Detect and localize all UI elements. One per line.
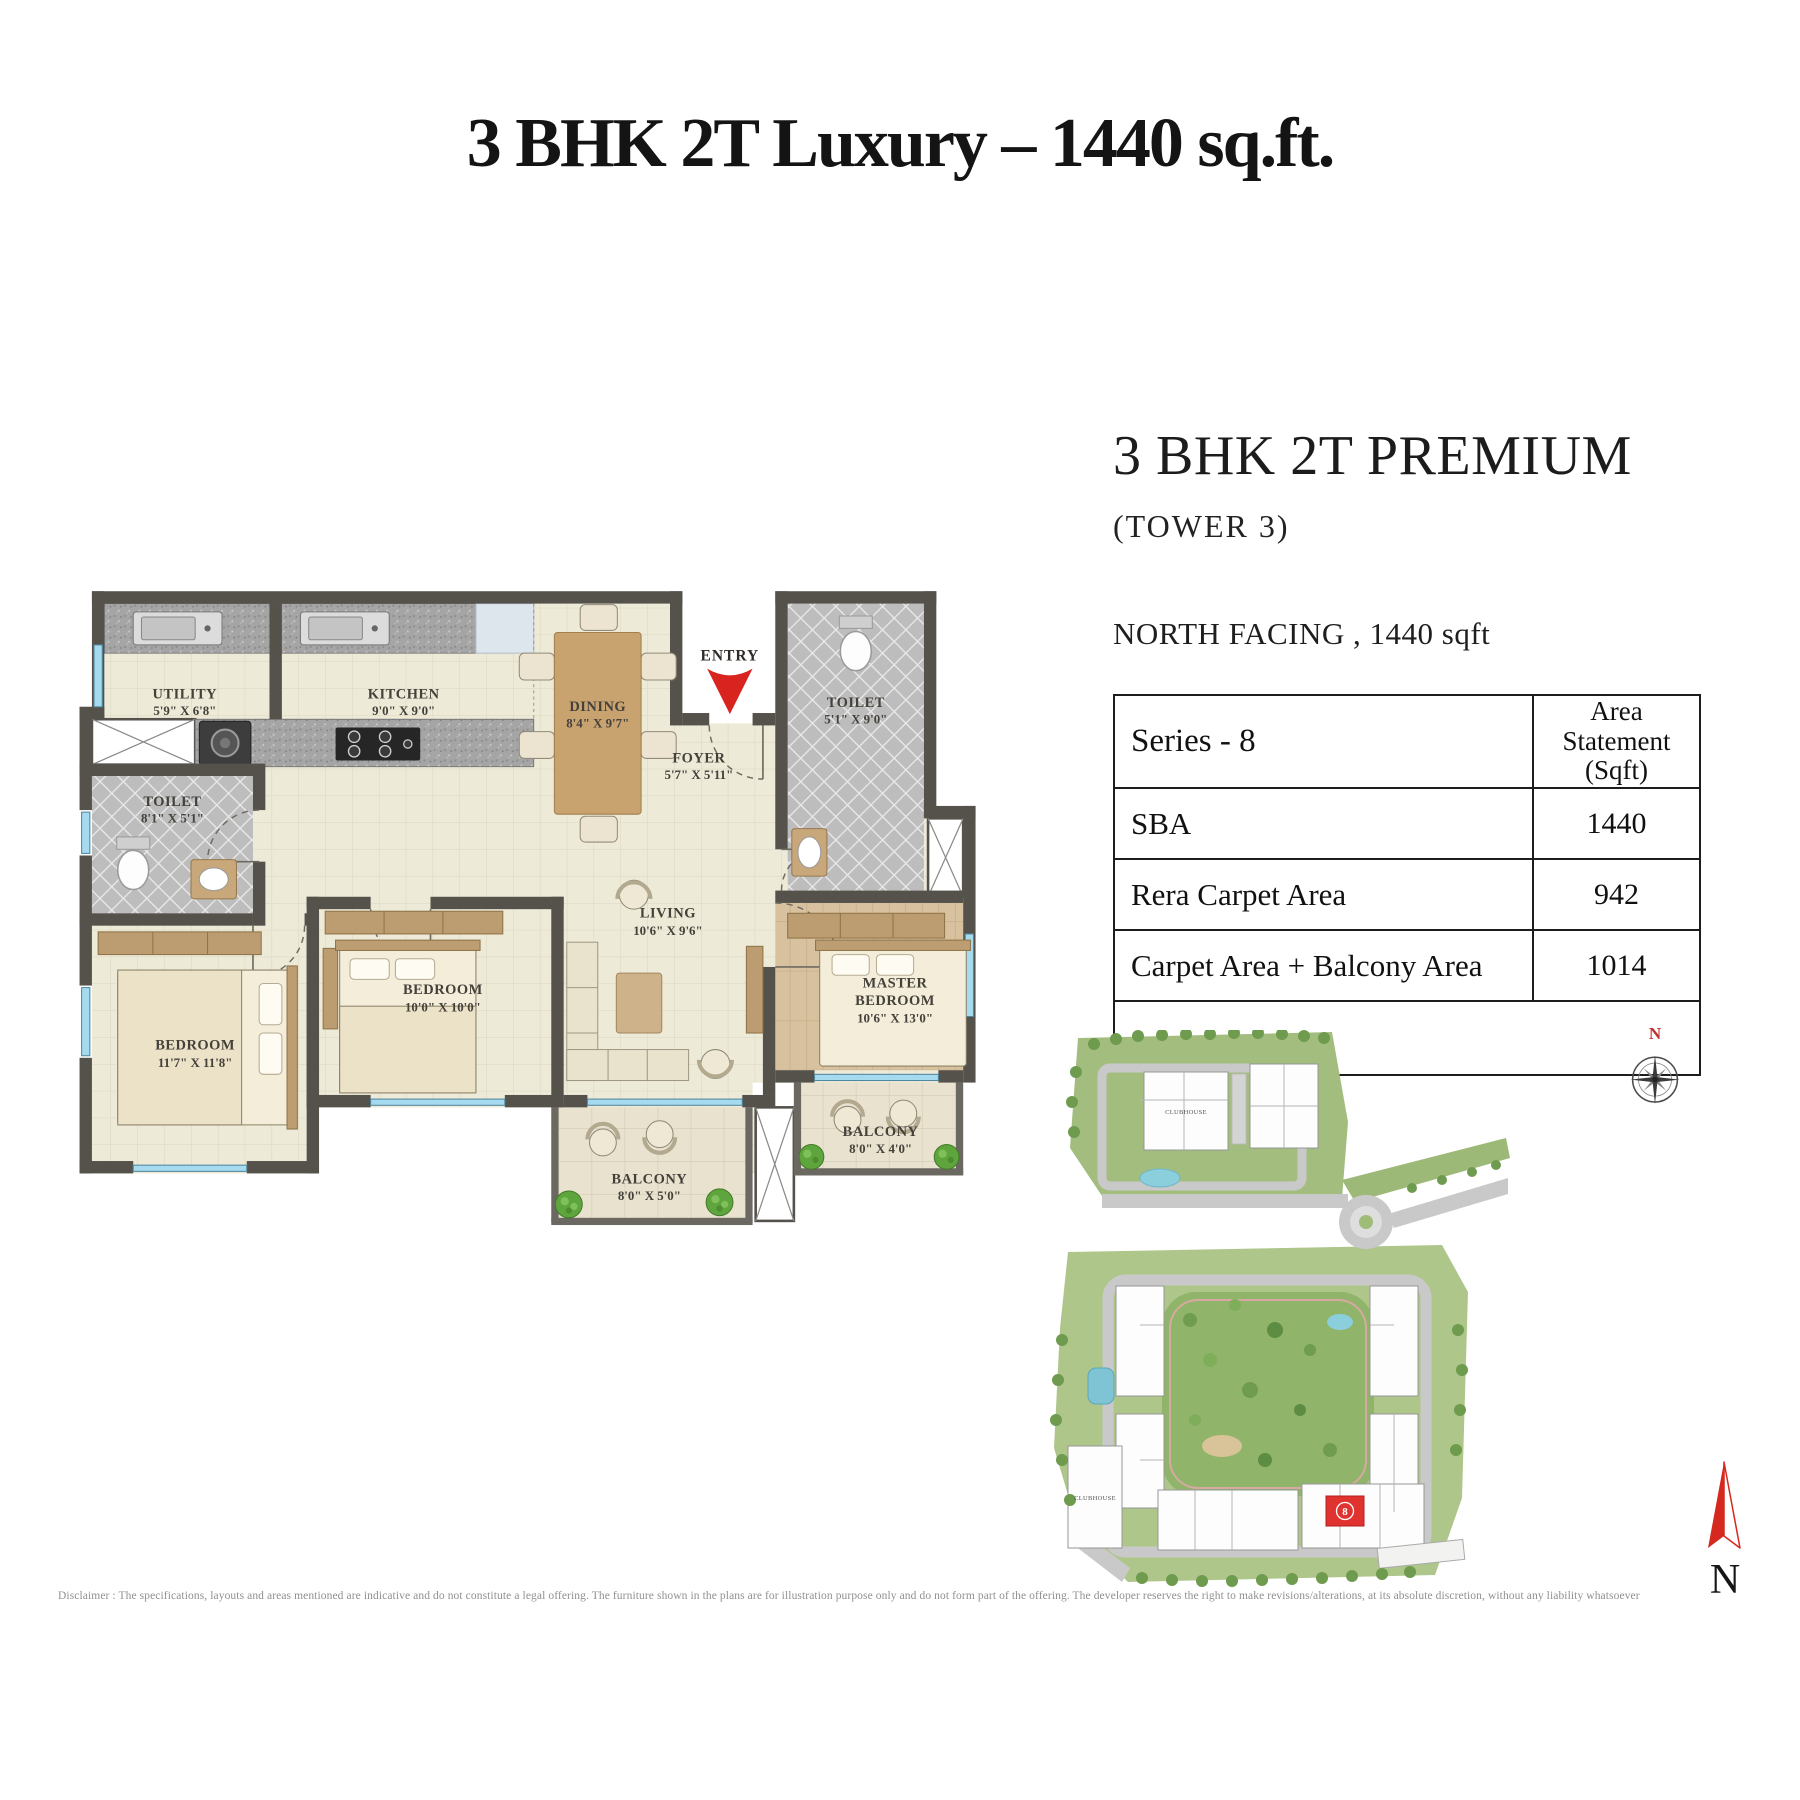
svg-text:5'7" X 5'11": 5'7" X 5'11" [665,768,734,782]
kitchen-sink [300,612,389,645]
area-statement-table: Series - 8 Area Statement (Sqft) SBA 144… [1113,694,1701,1076]
brochure-page: 3 BHK 2T Luxury – 1440 sq.ft. [0,0,1800,1800]
north-arrow-icon [1698,1458,1750,1554]
svg-text:10'6" X 13'0": 10'6" X 13'0" [857,1012,933,1026]
svg-text:BEDROOM: BEDROOM [855,993,935,1009]
disclaimer-text: Disclaimer : The specifications, layouts… [58,1590,1758,1602]
facing-line: NORTH FACING , 1440 sqft [1113,616,1490,652]
balcony-living-label: BALCONY [611,1172,687,1188]
svg-text:8: 8 [1342,1506,1348,1518]
svg-text:8'0" X 4'0": 8'0" X 4'0" [849,1142,912,1156]
unit-tower: (TOWER 3) [1113,508,1289,545]
clubhouse-top-label: CLUBHOUSE [1165,1109,1207,1116]
bed-mid [336,940,481,1093]
shaft-left [92,719,195,764]
shaft-right [928,818,963,896]
series-header: Series - 8 [1114,695,1533,788]
floor-plan: ENTRY UTILITY 5'9" X 6'8" KITCHEN 9'0" X… [30,500,990,1244]
pool [1088,1368,1114,1404]
bedroom-mid-label: BEDROOM [403,982,483,998]
toilet-top-label: TOILET [827,695,885,711]
svg-text:8'0" X 5'0": 8'0" X 5'0" [618,1189,681,1203]
site-plan-svg: CLUBHOUSE CLUBHOUSE 8 [1010,1030,1510,1590]
shaft-mid [756,1107,794,1221]
kitchen-label: KITCHEN [368,687,440,703]
svg-text:11'7" X 11'8": 11'7" X 11'8" [158,1056,232,1070]
clubhouse-bottom-label: CLUBHOUSE [1074,1495,1116,1502]
table-header-row: Series - 8 Area Statement (Sqft) [1114,695,1700,788]
dining-label: DINING [569,699,626,715]
unit-heading: 3 BHK 2T PREMIUM [1113,424,1632,488]
washing-machine [199,721,251,764]
utility-sink [133,612,222,645]
table-row: Carpet Area + Balcony Area 1014 [1114,930,1700,1001]
table-row: SBA 1440 [1114,788,1700,859]
upper-pond [1140,1169,1180,1187]
balcony-master-label: BALCONY [843,1124,919,1140]
page-title: 3 BHK 2T Luxury – 1440 sq.ft. [0,104,1800,184]
foyer-label: FOYER [672,751,725,767]
svg-text:5'9" X 6'8": 5'9" X 6'8" [153,704,216,718]
area-statement-header: Area Statement (Sqft) [1533,695,1700,788]
svg-text:10'6" X 9'6": 10'6" X 9'6" [633,924,702,938]
svg-text:9'0" X 9'0": 9'0" X 9'0" [372,704,435,718]
living-label: LIVING [640,905,696,921]
hob [336,727,421,760]
master-label: MASTER [863,976,928,992]
site-plan: CLUBHOUSE CLUBHOUSE 8 [1010,1030,1510,1590]
highlighted-unit-8: 8 [1326,1496,1364,1526]
compass-n-label: N [1649,1024,1662,1043]
entry-label: ENTRY [700,647,759,664]
utility-label: UTILITY [153,687,218,703]
table-row: Rera Carpet Area 942 [1114,859,1700,930]
bedroom-left-label: BEDROOM [155,1038,235,1054]
toilet-left-label: TOILET [143,794,201,810]
compass-rose: N [1612,1022,1698,1118]
park-pond [1327,1314,1353,1330]
svg-text:8'1" X 5'1": 8'1" X 5'1" [141,811,204,825]
svg-text:10'0" X 10'0": 10'0" X 10'0" [405,1000,481,1014]
svg-text:8'4" X 9'7": 8'4" X 9'7" [566,716,629,730]
floor-plan-svg: ENTRY UTILITY 5'9" X 6'8" KITCHEN 9'0" X… [30,500,990,1244]
fridge [476,604,534,654]
svg-text:5'1" X 9'0": 5'1" X 9'0" [824,712,887,726]
